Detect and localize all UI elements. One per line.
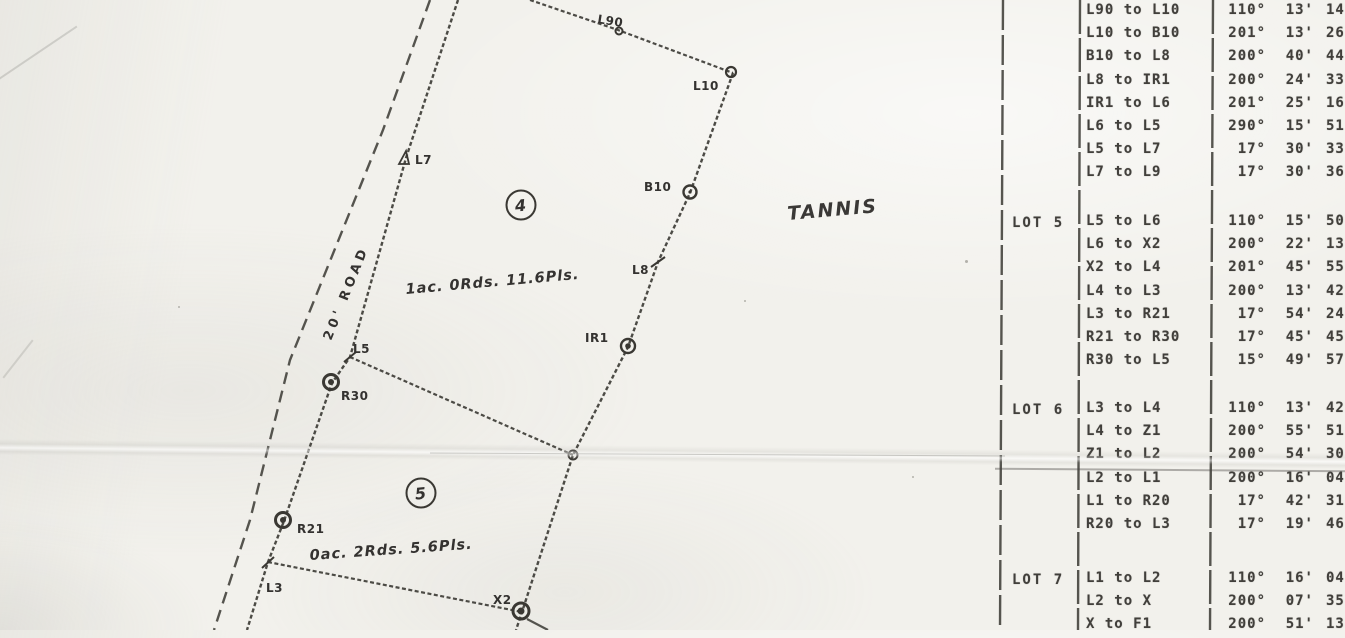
sec-cell: 26 bbox=[1326, 25, 1345, 41]
min-cell: 16' bbox=[1276, 570, 1314, 586]
pair-cell: L5 to L6 bbox=[1086, 213, 1218, 229]
min-cell: 30' bbox=[1276, 164, 1314, 180]
table-row: L8 to IR1200°24'33 bbox=[1086, 72, 1345, 94]
lot-group-label: LOT 5 bbox=[1012, 215, 1064, 231]
pair-cell: L2 to L1 bbox=[1086, 470, 1218, 486]
pair-cell: L1 to L2 bbox=[1086, 570, 1218, 586]
table-row: L5 to L6110°15'50 bbox=[1086, 213, 1345, 235]
min-cell: 16' bbox=[1276, 470, 1314, 486]
min-cell: 49' bbox=[1276, 352, 1314, 368]
pair-cell: IR1 to L6 bbox=[1086, 95, 1218, 111]
table-row: L3 to L4110°13'42 bbox=[1086, 400, 1345, 422]
pair-cell: L6 to X2 bbox=[1086, 236, 1218, 252]
sec-cell: 45 bbox=[1326, 329, 1345, 345]
min-cell: 07' bbox=[1276, 593, 1314, 609]
table-row: L3 to R2117°54'24 bbox=[1086, 306, 1345, 328]
deg-cell: 17° bbox=[1218, 306, 1266, 322]
pair-cell: R20 to L3 bbox=[1086, 516, 1218, 532]
pair-cell: X2 to L4 bbox=[1086, 259, 1218, 275]
sec-cell: 04 bbox=[1326, 570, 1345, 586]
paper-speck bbox=[965, 260, 968, 263]
pair-cell: L3 to L4 bbox=[1086, 400, 1218, 416]
min-cell: 13' bbox=[1276, 25, 1314, 41]
table-row: B10 to L8200°40'44 bbox=[1086, 48, 1345, 70]
table-row: L2 to L1200°16'04 bbox=[1086, 470, 1345, 492]
sec-cell: 35 bbox=[1326, 593, 1345, 609]
min-cell: 19' bbox=[1276, 516, 1314, 532]
deg-cell: 17° bbox=[1218, 493, 1266, 509]
pair-cell: L2 to X bbox=[1086, 593, 1218, 609]
deg-cell: 200° bbox=[1218, 283, 1266, 299]
min-cell: 15' bbox=[1276, 118, 1314, 134]
table-row: R20 to L317°19'46 bbox=[1086, 516, 1345, 538]
paper-speck bbox=[744, 300, 746, 302]
sec-cell: 46 bbox=[1326, 516, 1345, 532]
sec-cell: 42 bbox=[1326, 283, 1345, 299]
min-cell: 55' bbox=[1276, 423, 1314, 439]
sec-cell: 31 bbox=[1326, 493, 1345, 509]
deg-cell: 17° bbox=[1218, 141, 1266, 157]
pair-cell: L4 to Z1 bbox=[1086, 423, 1218, 439]
pair-cell: L3 to R21 bbox=[1086, 306, 1218, 322]
bearing-table: L90 to L10110°13'14L10 to B10201°13'26B1… bbox=[0, 0, 1345, 630]
deg-cell: 110° bbox=[1218, 570, 1266, 586]
table-row: R30 to L515°49'57 bbox=[1086, 352, 1345, 374]
pair-cell: L6 to L5 bbox=[1086, 118, 1218, 134]
sec-cell: 51 bbox=[1326, 118, 1345, 134]
deg-cell: 17° bbox=[1218, 516, 1266, 532]
table-row: L4 to L3200°13'42 bbox=[1086, 283, 1345, 305]
sec-cell: 36 bbox=[1326, 164, 1345, 180]
sec-cell: 24 bbox=[1326, 306, 1345, 322]
min-cell: 25' bbox=[1276, 95, 1314, 111]
pair-cell: L8 to IR1 bbox=[1086, 72, 1218, 88]
sec-cell: 13 bbox=[1326, 236, 1345, 252]
deg-cell: 201° bbox=[1218, 25, 1266, 41]
deg-cell: 15° bbox=[1218, 352, 1266, 368]
min-cell: 42' bbox=[1276, 493, 1314, 509]
deg-cell: 110° bbox=[1218, 2, 1266, 18]
sec-cell: 57 bbox=[1326, 352, 1345, 368]
deg-cell: 200° bbox=[1218, 72, 1266, 88]
deg-cell: 200° bbox=[1218, 423, 1266, 439]
sec-cell: 55 bbox=[1326, 259, 1345, 275]
table-row: L2 to X200°07'35 bbox=[1086, 593, 1345, 615]
min-cell: 45' bbox=[1276, 259, 1314, 275]
sec-cell: 50 bbox=[1326, 213, 1345, 229]
min-cell: 22' bbox=[1276, 236, 1314, 252]
min-cell: 15' bbox=[1276, 213, 1314, 229]
table-row: IR1 to L6201°25'16 bbox=[1086, 95, 1345, 117]
pair-cell: L90 to L10 bbox=[1086, 2, 1218, 18]
table-row: L5 to L717°30'33 bbox=[1086, 141, 1345, 163]
pair-cell: L7 to L9 bbox=[1086, 164, 1218, 180]
min-cell: 30' bbox=[1276, 141, 1314, 157]
deg-cell: 110° bbox=[1218, 400, 1266, 416]
pair-cell: L5 to L7 bbox=[1086, 141, 1218, 157]
paper-speck bbox=[912, 476, 914, 478]
table-row: L1 to L2110°16'04 bbox=[1086, 570, 1345, 592]
table-row: X2 to L4201°45'55 bbox=[1086, 259, 1345, 281]
deg-cell: 290° bbox=[1218, 118, 1266, 134]
table-row: L10 to B10201°13'26 bbox=[1086, 25, 1345, 47]
deg-cell: 201° bbox=[1218, 95, 1266, 111]
table-row: X to F1200°51'13 bbox=[1086, 616, 1345, 638]
deg-cell: 17° bbox=[1218, 329, 1266, 345]
min-cell: 13' bbox=[1276, 400, 1314, 416]
sec-cell: 51 bbox=[1326, 423, 1345, 439]
deg-cell: 200° bbox=[1218, 236, 1266, 252]
scanned-survey-plan: { "map": { "road_label": "20' ROAD", "re… bbox=[0, 0, 1345, 630]
min-cell: 13' bbox=[1276, 283, 1314, 299]
table-row: L90 to L10110°13'14 bbox=[1086, 2, 1345, 24]
table-row: R21 to R3017°45'45 bbox=[1086, 329, 1345, 351]
deg-cell: 110° bbox=[1218, 213, 1266, 229]
sec-cell: 33 bbox=[1326, 72, 1345, 88]
lot-group-label: LOT 6 bbox=[1012, 402, 1064, 418]
table-row: L6 to X2200°22'13 bbox=[1086, 236, 1345, 258]
min-cell: 45' bbox=[1276, 329, 1314, 345]
min-cell: 24' bbox=[1276, 72, 1314, 88]
table-row: L1 to R2017°42'31 bbox=[1086, 493, 1345, 515]
sec-cell: 33 bbox=[1326, 141, 1345, 157]
deg-cell: 201° bbox=[1218, 259, 1266, 275]
pair-cell: L1 to R20 bbox=[1086, 493, 1218, 509]
sec-cell: 44 bbox=[1326, 48, 1345, 64]
pair-cell: B10 to L8 bbox=[1086, 48, 1218, 64]
deg-cell: 200° bbox=[1218, 48, 1266, 64]
deg-cell: 17° bbox=[1218, 164, 1266, 180]
deg-cell: 200° bbox=[1218, 593, 1266, 609]
pair-cell: R30 to L5 bbox=[1086, 352, 1218, 368]
min-cell: 40' bbox=[1276, 48, 1314, 64]
deg-cell: 200° bbox=[1218, 470, 1266, 486]
sec-cell: 16 bbox=[1326, 95, 1345, 111]
table-row: L4 to Z1200°55'51 bbox=[1086, 423, 1345, 445]
sec-cell: 42 bbox=[1326, 400, 1345, 416]
min-cell: 54' bbox=[1276, 306, 1314, 322]
pair-cell: L10 to B10 bbox=[1086, 25, 1218, 41]
lot-group-label: LOT 7 bbox=[1012, 572, 1064, 588]
paper-speck bbox=[178, 306, 180, 308]
min-cell: 13' bbox=[1276, 2, 1314, 18]
table-row: L7 to L917°30'36 bbox=[1086, 164, 1345, 186]
table-row: L6 to L5290°15'51 bbox=[1086, 118, 1345, 140]
pair-cell: L4 to L3 bbox=[1086, 283, 1218, 299]
sec-cell: 14 bbox=[1326, 2, 1345, 18]
pair-cell: R21 to R30 bbox=[1086, 329, 1218, 345]
